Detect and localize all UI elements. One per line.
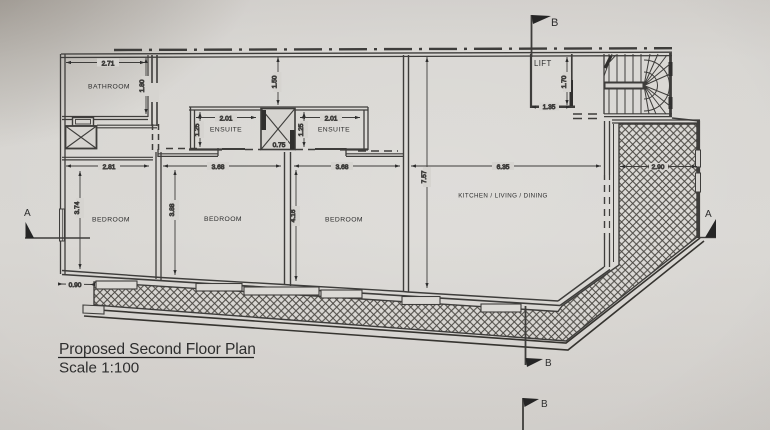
svg-text:1.80: 1.80: [139, 79, 146, 92]
svg-text:BEDROOM: BEDROOM: [325, 217, 363, 224]
svg-text:A: A: [24, 208, 31, 219]
svg-text:BEDROOM: BEDROOM: [92, 217, 130, 224]
svg-text:B: B: [541, 399, 548, 410]
svg-text:4.16: 4.16: [290, 209, 297, 222]
svg-text:B: B: [545, 358, 552, 369]
svg-text:BEDROOM: BEDROOM: [204, 216, 242, 223]
svg-text:0.90: 0.90: [69, 282, 82, 289]
svg-text:3.74: 3.74: [74, 201, 81, 214]
svg-text:2.90: 2.90: [652, 164, 665, 171]
svg-text:B: B: [551, 17, 558, 29]
svg-text:1.70: 1.70: [561, 75, 568, 88]
svg-text:3.68: 3.68: [212, 164, 225, 171]
svg-text:2.01: 2.01: [220, 115, 233, 122]
svg-text:7.57: 7.57: [421, 170, 428, 183]
svg-text:ENSUITE: ENSUITE: [318, 127, 350, 134]
svg-text:1.25: 1.25: [194, 123, 201, 136]
svg-text:3.68: 3.68: [336, 164, 349, 171]
svg-text:2.81: 2.81: [103, 164, 116, 171]
svg-text:BATHROOM: BATHROOM: [88, 84, 130, 91]
svg-text:A: A: [705, 209, 712, 220]
svg-text:1.50: 1.50: [272, 75, 279, 88]
svg-text:LIFT: LIFT: [534, 59, 552, 68]
svg-text:Proposed Second Floor Plan: Proposed Second Floor Plan: [59, 341, 256, 358]
svg-text:2.71: 2.71: [102, 60, 115, 67]
svg-text:Scale 1:100: Scale 1:100: [59, 360, 139, 377]
svg-text:0.75: 0.75: [273, 142, 286, 149]
svg-text:6.35: 6.35: [497, 164, 510, 171]
svg-text:KITCHEN / LIVING / DINING: KITCHEN / LIVING / DINING: [458, 193, 547, 200]
svg-text:2.01: 2.01: [325, 115, 338, 122]
svg-text:1.25: 1.25: [298, 123, 305, 136]
svg-text:ENSUITE: ENSUITE: [210, 127, 242, 134]
svg-text:1.35: 1.35: [543, 104, 556, 111]
svg-text:3.88: 3.88: [169, 203, 176, 216]
